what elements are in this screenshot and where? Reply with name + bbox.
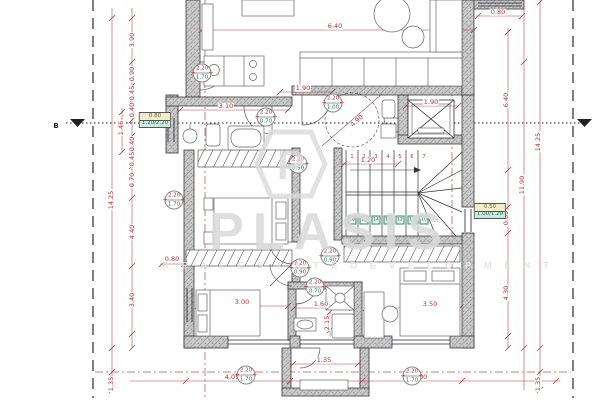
staircase (346, 150, 462, 236)
elevator-shaft (408, 100, 454, 138)
section-line (66, 119, 592, 127)
floor-plan-canvas: 3.900.900.450.401.460.400.450.704.403.40… (0, 0, 600, 400)
floor-plan-drawing (0, 0, 600, 400)
